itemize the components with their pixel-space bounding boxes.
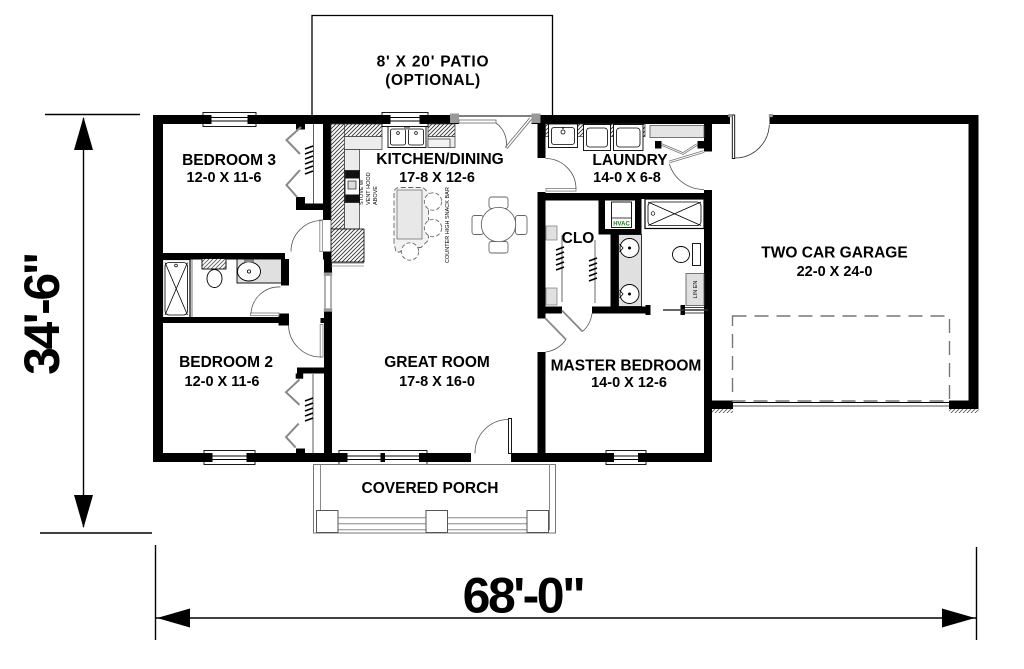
svg-text:TWO CAR GARAGE: TWO CAR GARAGE [761, 245, 907, 262]
svg-text:ABOVE: ABOVE [373, 186, 379, 205]
svg-text:KITCHEN/DINING: KITCHEN/DINING [376, 151, 503, 168]
svg-text:22-0 X 24-0: 22-0 X 24-0 [797, 264, 873, 280]
svg-text:17-8 X 12-6: 17-8 X 12-6 [399, 170, 475, 186]
svg-text:HVAC: HVAC [613, 222, 630, 228]
svg-text:12-0 X 11-6: 12-0 X 11-6 [185, 374, 260, 390]
svg-text:34'-6": 34'-6" [14, 254, 70, 375]
svg-text:LIN EN: LIN EN [693, 281, 699, 299]
svg-text:CLO: CLO [562, 230, 595, 247]
svg-text:17-8 X 16-0: 17-8 X 16-0 [399, 374, 475, 390]
svg-text:VENT HOOD: VENT HOOD [366, 172, 372, 205]
svg-text:BEDROOM 3: BEDROOM 3 [182, 152, 276, 169]
svg-text:8' X 20' PATIO: 8' X 20' PATIO [377, 54, 490, 71]
svg-text:12-0 X 11-6: 12-0 X 11-6 [187, 170, 262, 186]
svg-text:LAUNDRY: LAUNDRY [592, 152, 668, 169]
svg-text:STOVE w/: STOVE w/ [359, 179, 365, 205]
svg-text:GREAT ROOM: GREAT ROOM [384, 354, 490, 371]
svg-text:68'-0": 68'-0" [463, 568, 584, 624]
svg-text:14-0 X 6-8: 14-0 X 6-8 [593, 170, 661, 186]
svg-text:COUNTER HIGH SNACK BAR: COUNTER HIGH SNACK BAR [445, 187, 451, 263]
svg-text:14-0 X 12-6: 14-0 X 12-6 [591, 375, 667, 391]
svg-text:(OPTIONAL): (OPTIONAL) [385, 72, 480, 89]
svg-text:COVERED PORCH: COVERED PORCH [362, 480, 499, 497]
svg-text:BEDROOM 2: BEDROOM 2 [179, 354, 273, 371]
svg-text:MASTER BEDROOM: MASTER BEDROOM [551, 358, 702, 375]
